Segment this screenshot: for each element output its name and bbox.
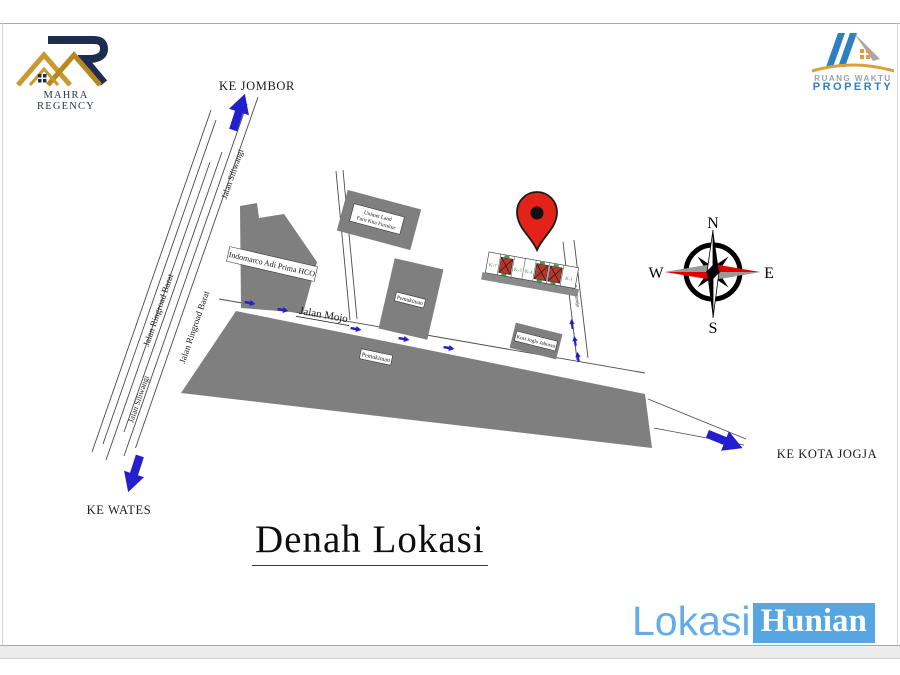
footer-lokasi-text: Lokasi [632, 601, 751, 643]
arrow-to-wates [118, 453, 150, 496]
footer-hunian-box: Hunian [753, 603, 875, 643]
page-title: Denah Lokasi [252, 517, 488, 566]
footer-hunian-text: Hunian [761, 603, 867, 639]
mojo-arrow-3 [350, 325, 362, 333]
compass-rose: N S W E [648, 215, 773, 337]
svg-text:Jalan Mojo: Jalan Mojo [298, 305, 349, 325]
compass-w: W [648, 265, 664, 282]
mojo-arrow-4 [398, 335, 410, 343]
mojo-arrow-5 [443, 344, 455, 352]
site-plan-strip: K-7 K-3 K-4 K-1 [481, 251, 582, 296]
compass-south-point [707, 272, 713, 318]
compass-n: N [707, 215, 719, 232]
side-arrow-2 [572, 336, 579, 347]
footer-brand: LokasiHunian [632, 601, 875, 643]
letterhead-page: MAHRA REGENCY RUANG WAKTU PROPERTY [0, 0, 900, 675]
arrow-to-jogja [703, 424, 746, 458]
pin-center-dot [531, 207, 544, 220]
jalan-mojo-label: Jalan Mojo [296, 304, 351, 325]
ringroad-label-2: Jalan Ringroad Barat [177, 289, 211, 365]
ke-jombor-text: KE JOMBOR [219, 79, 295, 93]
compass-north-point [713, 230, 719, 272]
compass-e: E [764, 265, 774, 282]
compass-s: S [709, 320, 718, 337]
location-pin [517, 192, 557, 250]
siliwangi-label-lower: Jalan Siliwangi [126, 374, 151, 424]
ringroad-lines [92, 97, 258, 460]
location-map: Indomarco Adi Prima HCO Unimet Land Furn… [0, 0, 900, 675]
side-arrow-1 [569, 319, 576, 330]
ringroad-label-1: Jalan Ringroad Barat [141, 272, 175, 348]
ke-kota-jogja-text: KE KOTA JOGJA [777, 447, 878, 461]
ke-wates-text: KE WATES [87, 503, 152, 517]
